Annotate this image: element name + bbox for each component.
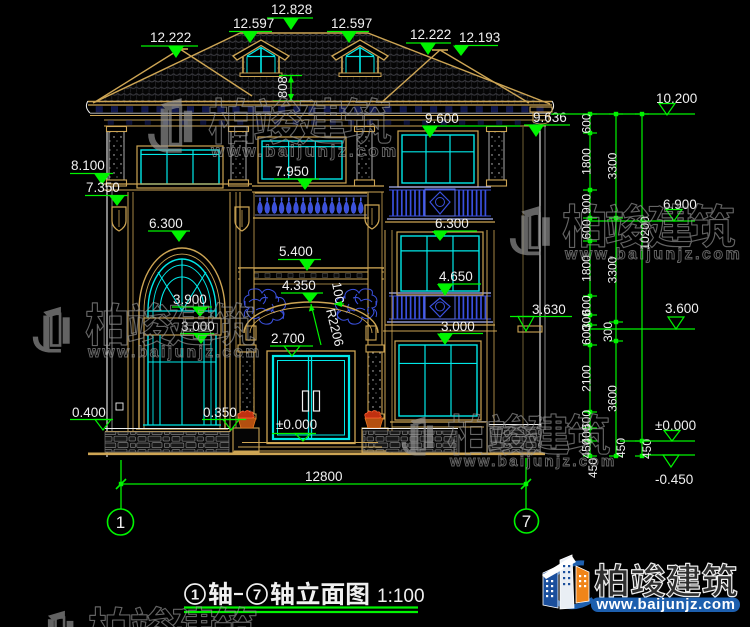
svg-text:600: 600 <box>580 325 594 345</box>
svg-text:12800: 12800 <box>305 469 343 484</box>
svg-text:450: 450 <box>640 439 654 459</box>
svg-text:0.350: 0.350 <box>203 405 237 420</box>
svg-text:12.828: 12.828 <box>271 2 312 17</box>
svg-text:www.baijunjz.com: www.baijunjz.com <box>87 344 262 361</box>
svg-text:3.630: 3.630 <box>532 302 566 317</box>
svg-text:808: 808 <box>275 76 290 98</box>
svg-text:www.baijunjz.com: www.baijunjz.com <box>210 141 399 160</box>
svg-text:7: 7 <box>253 587 261 604</box>
svg-text:7: 7 <box>522 512 531 531</box>
svg-text:4.650: 4.650 <box>439 269 473 284</box>
svg-text:9.600: 9.600 <box>425 111 459 126</box>
svg-text:7.350: 7.350 <box>86 180 120 195</box>
svg-text:3.000: 3.000 <box>441 319 475 334</box>
svg-text:9.636: 9.636 <box>533 110 567 125</box>
svg-text:12.222: 12.222 <box>410 27 451 42</box>
svg-text:1:100: 1:100 <box>377 586 425 607</box>
svg-text:2.700: 2.700 <box>271 331 305 346</box>
svg-text:7.950: 7.950 <box>275 164 309 179</box>
svg-text:4.350: 4.350 <box>282 278 316 293</box>
svg-text:-0.450: -0.450 <box>655 472 693 487</box>
svg-text:300: 300 <box>601 322 615 342</box>
svg-text:0.400: 0.400 <box>72 405 106 420</box>
svg-text:www.baijunjz.com: www.baijunjz.com <box>595 596 735 613</box>
svg-text:12.193: 12.193 <box>459 30 500 45</box>
svg-text:6.300: 6.300 <box>435 216 469 231</box>
svg-text:www.baijunjz.com: www.baijunjz.com <box>564 246 742 263</box>
svg-text:600: 600 <box>580 113 594 133</box>
svg-text:±0.000: ±0.000 <box>276 417 317 432</box>
svg-text:1: 1 <box>116 513 125 532</box>
svg-text:2100: 2100 <box>580 365 594 392</box>
svg-text:3.900: 3.900 <box>173 292 207 307</box>
svg-text:3.600: 3.600 <box>665 301 699 316</box>
svg-text:8.100: 8.100 <box>71 158 105 173</box>
svg-text:5.400: 5.400 <box>279 244 313 259</box>
svg-text:www.baijunjz.com: www.baijunjz.com <box>449 454 617 470</box>
svg-text:6.300: 6.300 <box>149 216 183 231</box>
svg-text:3300: 3300 <box>606 152 620 179</box>
svg-text:3600: 3600 <box>606 385 620 412</box>
svg-text:12.597: 12.597 <box>331 16 372 31</box>
svg-text:1800: 1800 <box>580 148 594 175</box>
svg-text:1: 1 <box>191 587 199 604</box>
svg-text:12.222: 12.222 <box>150 30 191 45</box>
